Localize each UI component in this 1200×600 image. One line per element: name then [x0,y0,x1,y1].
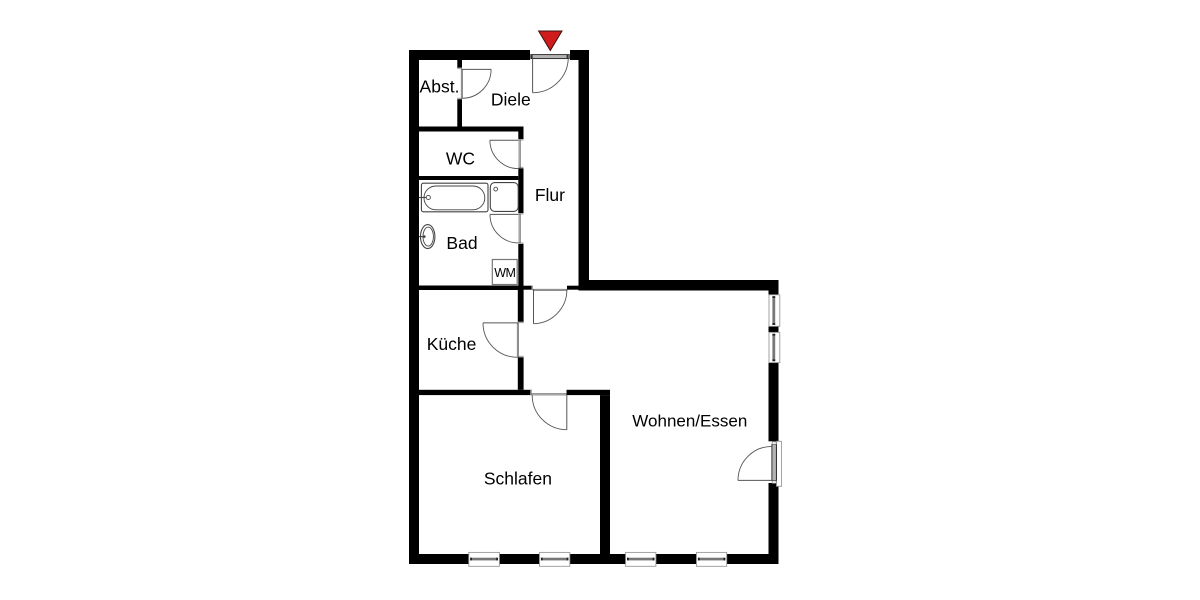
svg-text:Abst.: Abst. [420,77,460,97]
svg-text:Diele: Diele [491,90,531,110]
svg-text:WC: WC [446,148,475,168]
svg-text:Küche: Küche [427,334,477,354]
svg-text:Wohnen/Essen: Wohnen/Essen [632,412,747,431]
svg-text:Flur: Flur [535,185,565,205]
svg-text:Schlafen: Schlafen [484,468,552,488]
svg-text:Bad: Bad [446,233,477,253]
svg-text:WM: WM [494,266,515,280]
